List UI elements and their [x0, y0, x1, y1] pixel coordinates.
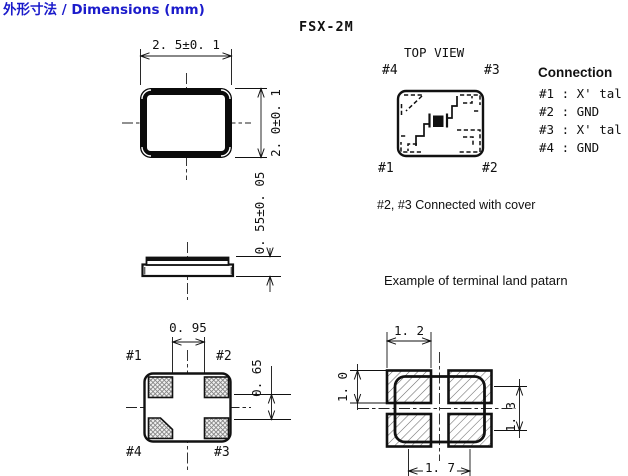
dimensions-drawing-page: 外形寸法 / Dimensions (mm) FSX-2M TOP VIEW #…: [0, 0, 628, 476]
connection-row-1: #1 : X' tal: [539, 87, 622, 101]
dim-thickness-lines: [236, 248, 281, 292]
dim-width-lines: [141, 49, 232, 85]
dim-pad-height: 0. 65: [250, 359, 264, 397]
bottom-view-pin3-label: #3: [214, 446, 230, 460]
top-view-drawing: [398, 91, 483, 156]
package-body: [144, 92, 229, 155]
dim-land-pitch-y: 1. 3: [504, 402, 518, 432]
bottom-view-pin1-label: #1: [126, 350, 142, 364]
ceramic-base: [143, 265, 234, 277]
bottom-view-pin2-label: #2: [216, 350, 232, 364]
land-pattern-heading: Example of terminal land patarn: [384, 274, 568, 288]
dim-package-thickness: 0. 55±0. 05: [253, 172, 267, 255]
top-view-pin1-label: #1: [378, 162, 394, 176]
top-view-label: TOP VIEW: [404, 46, 464, 60]
dim-land-height-lines: [350, 364, 386, 410]
dim-package-height: 2. 0±0. 1: [269, 89, 283, 157]
connection-heading: Connection: [538, 66, 612, 81]
connection-row-4: #4 : GND: [539, 141, 599, 155]
connection-row-2: #2 : GND: [539, 105, 599, 119]
top-view-pin4-label: #4: [382, 64, 398, 78]
dim-package-width: 2. 5±0. 1: [152, 38, 220, 52]
top-view-pin3-label: #3: [484, 64, 500, 78]
page-title: 外形寸法 / Dimensions (mm): [3, 3, 205, 18]
dim-land-height: 1. 0: [336, 372, 350, 402]
bottom-view-pin4-label: #4: [126, 446, 142, 460]
cover-connection-note: #2, #3 Connected with cover: [377, 199, 535, 213]
crystal-element: [434, 116, 444, 127]
model-number: FSX-2M: [299, 20, 354, 35]
package-outline-top-drawing: [122, 49, 267, 180]
pad-2: [205, 377, 229, 398]
dim-pad-gap: 0. 95: [169, 321, 207, 335]
dim-land-pitch-x: 1. 7: [423, 461, 457, 475]
top-view-pin2-label: #2: [482, 162, 498, 176]
pad-1: [149, 377, 173, 398]
land-pattern-drawing: [350, 332, 527, 476]
pad-3: [205, 418, 229, 439]
dim-land-width: 1. 2: [394, 324, 424, 338]
dim-pad-gap-lines: [173, 337, 205, 374]
package-bottom-view-drawing: [126, 337, 291, 471]
connection-row-3: #3 : X' tal: [539, 123, 622, 137]
technical-drawing-artwork: [0, 0, 628, 476]
